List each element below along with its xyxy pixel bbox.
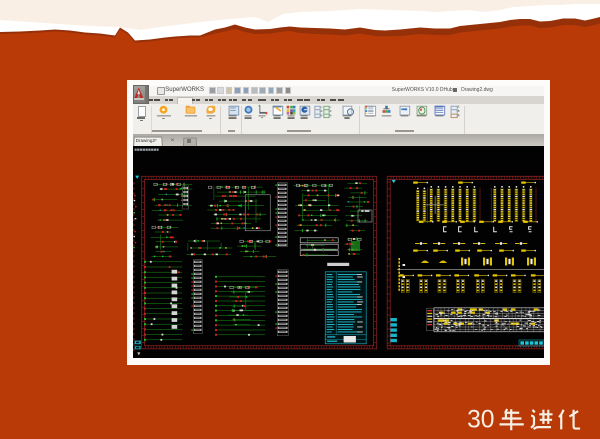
svg-text:30: 30 — [467, 407, 494, 433]
